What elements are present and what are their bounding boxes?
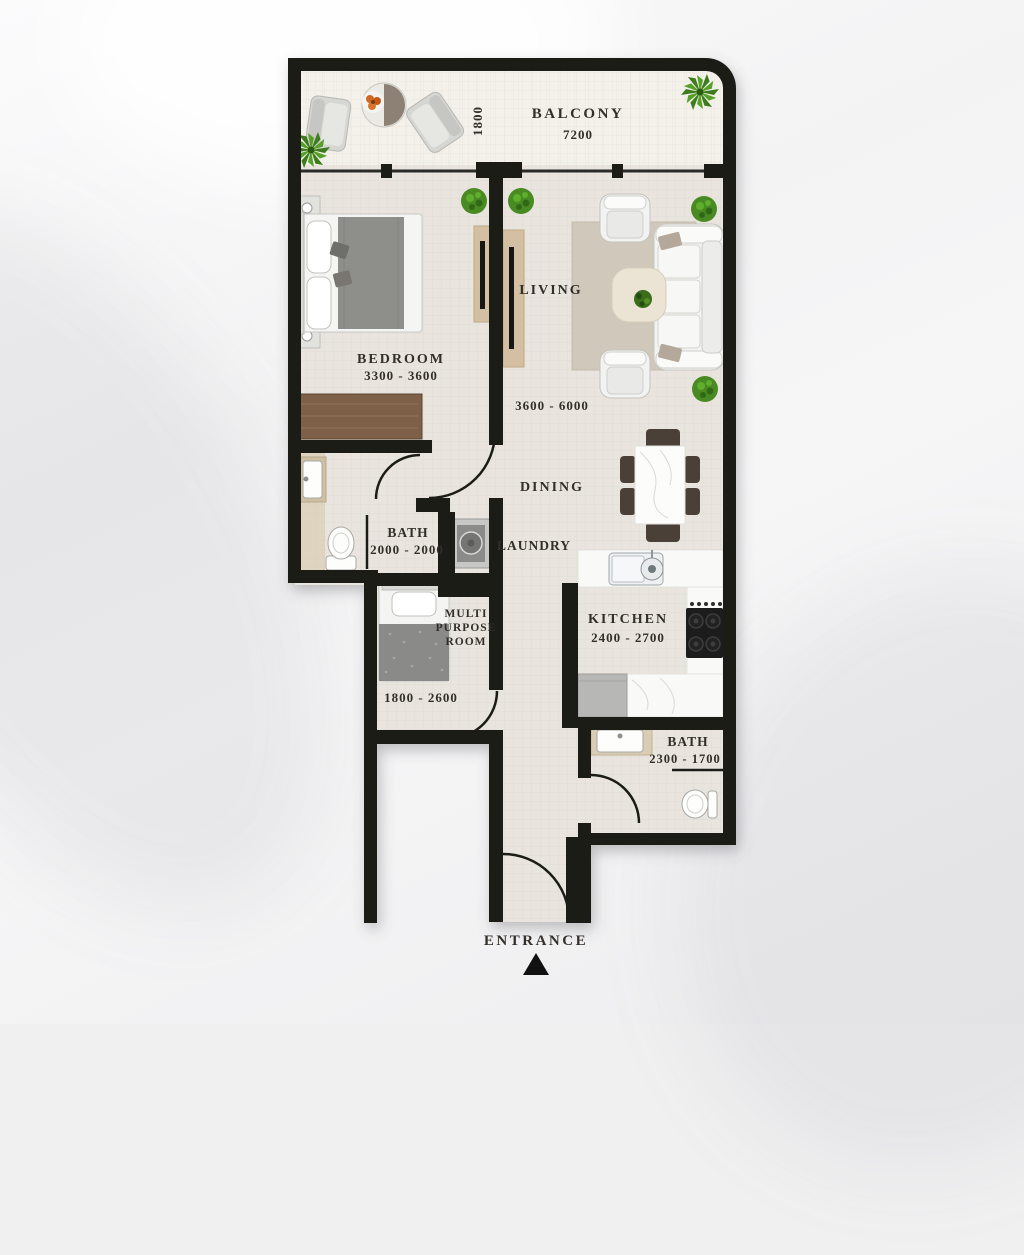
kitchen-dim: 2400 - 2700	[591, 630, 665, 645]
dining-chair	[620, 456, 636, 483]
plant-icon	[634, 290, 652, 308]
plant-icon	[691, 196, 717, 222]
kitchen-label: KITCHEN	[588, 612, 668, 627]
living-dim: 3600 - 6000	[515, 398, 589, 413]
bath1-label: BATH	[387, 525, 428, 540]
balcony-depth-dim: 1800	[470, 106, 485, 136]
tv-icon	[509, 247, 514, 349]
balcony-table	[362, 83, 406, 127]
balcony-dim: 7200	[563, 127, 593, 142]
dining-chair	[620, 488, 636, 515]
wall	[562, 583, 578, 728]
plant-icon	[508, 188, 534, 214]
wall	[288, 58, 301, 583]
wall	[566, 837, 591, 923]
wall	[381, 164, 392, 178]
living-label: LIVING	[519, 283, 582, 298]
balcony-label: BALCONY	[532, 106, 625, 122]
dining-label: DINING	[520, 480, 584, 495]
bath2-dim: 2300 - 1700	[649, 752, 720, 766]
toilet-icon	[682, 790, 717, 818]
pillow	[307, 221, 331, 273]
plant-icon	[461, 188, 487, 214]
dining-chair	[684, 456, 700, 483]
laundry-label: LAUNDRY	[497, 538, 571, 553]
armchair	[600, 350, 650, 398]
plant-icon	[692, 376, 718, 402]
dining-chair	[684, 488, 700, 515]
armchair	[600, 194, 650, 242]
multipurpose-dim: 1800 - 2600	[384, 690, 458, 705]
double-bed	[294, 212, 422, 334]
bath1-dim: 2000 - 2000	[370, 542, 444, 557]
coffee-table	[612, 268, 666, 322]
stove-icon	[686, 602, 723, 658]
wall	[578, 730, 591, 778]
washing-machine-icon	[452, 519, 490, 568]
wall	[364, 573, 377, 923]
multipurpose-label-line2: PURPOSE	[436, 622, 497, 634]
sink-icon	[591, 727, 652, 755]
wall	[489, 498, 503, 690]
wall	[723, 88, 736, 845]
bedroom-dim: 3300 - 3600	[364, 368, 438, 383]
dining-table	[635, 446, 685, 524]
wall	[612, 164, 623, 178]
dining-chair	[646, 522, 680, 542]
entrance-label: ENTRANCE	[484, 933, 588, 949]
bedroom-label: BEDROOM	[357, 352, 445, 367]
sink-icon	[609, 550, 663, 585]
apartment-unit: BALCONY 7200 1800 BEDROOM 3300 - 3600 LI…	[288, 58, 737, 928]
wall	[288, 440, 432, 453]
wall	[578, 833, 736, 845]
wall	[489, 744, 503, 922]
bath2-label: BATH	[667, 734, 708, 749]
floor-plan-canvas: BALCONY 7200 1800 BEDROOM 3300 - 3600 LI…	[0, 0, 1024, 1024]
pillow	[307, 277, 331, 329]
floor-plan-drawing: BALCONY 7200 1800 BEDROOM 3300 - 3600 LI…	[0, 0, 1024, 1024]
tv-icon	[480, 241, 485, 309]
multipurpose-label-line1: MULTI	[445, 608, 488, 620]
wall	[364, 730, 503, 744]
wall	[364, 573, 499, 586]
tv-unit	[503, 230, 524, 367]
sink-icon	[299, 457, 326, 502]
tv-unit	[474, 226, 490, 322]
multipurpose-label-line3: ROOM	[445, 636, 486, 648]
wall	[489, 162, 503, 445]
wall	[578, 717, 723, 730]
pillow	[392, 592, 436, 616]
wardrobe	[296, 394, 422, 439]
wall	[416, 498, 450, 512]
kitchen-counter	[627, 674, 723, 717]
toilet-icon	[326, 527, 356, 570]
entrance-marker: ENTRANCE	[484, 933, 588, 975]
entrance-arrow-icon	[523, 953, 549, 975]
refrigerator	[578, 674, 627, 717]
wall	[704, 164, 723, 178]
